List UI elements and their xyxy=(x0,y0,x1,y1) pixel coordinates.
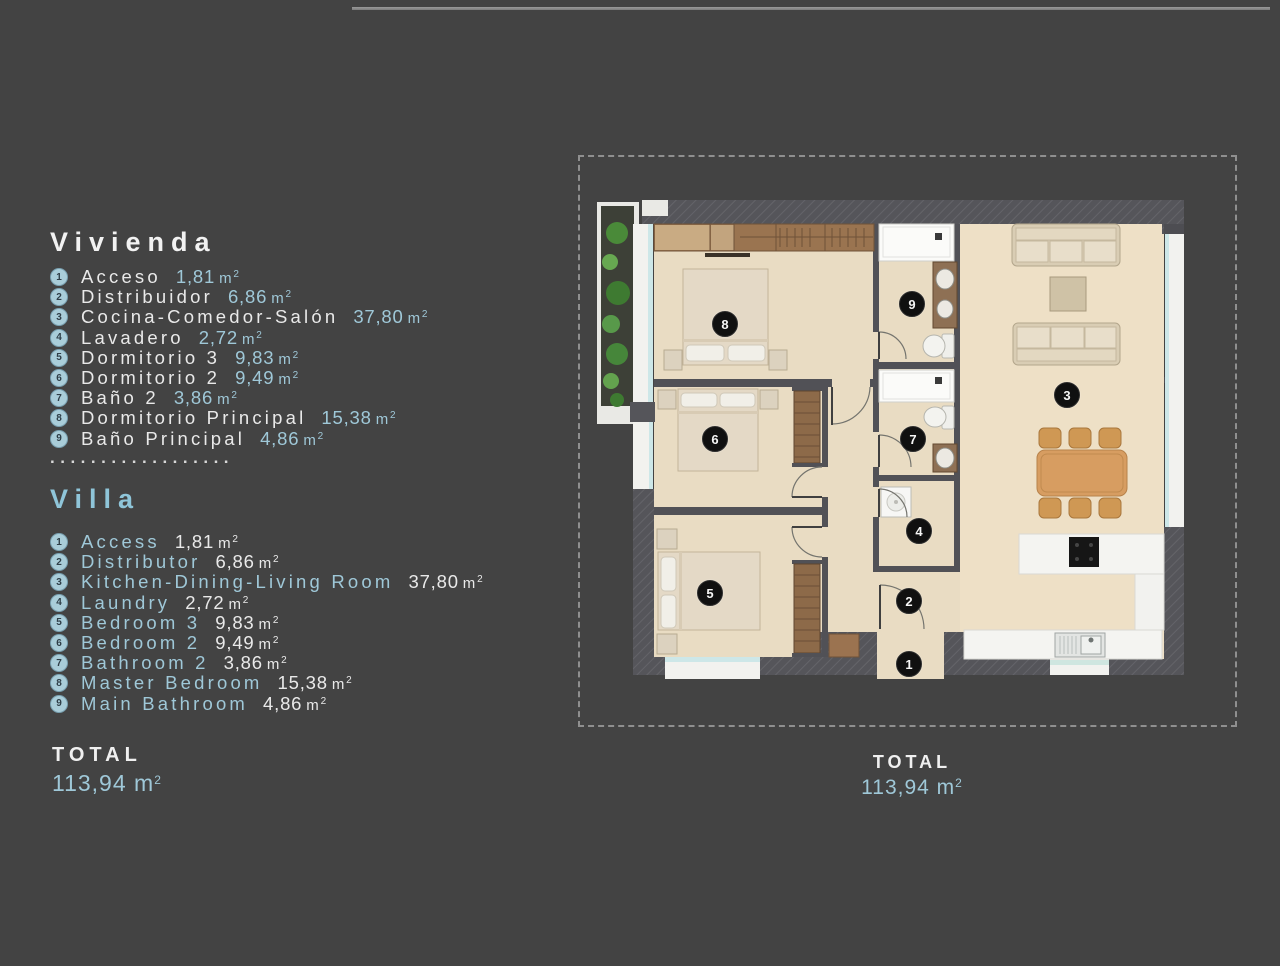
plan-marker-6: 6 xyxy=(702,426,728,452)
room-number-badge: 2 xyxy=(50,553,68,571)
room-number-badge: 2 xyxy=(50,288,68,306)
plan-marker-9: 9 xyxy=(899,291,925,317)
room-number-badge: 7 xyxy=(50,654,68,672)
list-item: 8Master Bedroom15,38m2 xyxy=(50,673,570,693)
room-area: 1,81m2 xyxy=(175,531,239,553)
room-number-badge: 5 xyxy=(50,614,68,632)
total-label: TOTAL xyxy=(826,752,998,773)
list-item: 3Cocina-Comedor-Salón37,80m2 xyxy=(50,307,570,327)
room-label: Kitchen-Dining-Living Room xyxy=(81,571,394,593)
glass-wall-right xyxy=(1165,234,1184,527)
room-label: Dormitorio Principal xyxy=(81,407,306,429)
room-label: Master Bedroom xyxy=(81,672,263,694)
room-number-badge: 4 xyxy=(50,329,68,347)
list-item: 9Main Bathroom4,86m2 xyxy=(50,694,570,714)
total-label: TOTAL xyxy=(52,744,162,767)
section-title-villa: Villa xyxy=(50,484,140,515)
room-number-badge: 8 xyxy=(50,409,68,427)
room-area: 9,49m2 xyxy=(215,632,279,654)
list-item: 7Baño 23,86m2 xyxy=(50,388,570,408)
plan-marker-4: 4 xyxy=(906,518,932,544)
total-value: 113,94 m2 xyxy=(826,776,998,800)
room-area: 9,83m2 xyxy=(215,612,279,634)
total-value: 113,94 m2 xyxy=(52,770,162,797)
list-item: 7Bathroom 23,86m2 xyxy=(50,653,570,673)
plan-marker-7: 7 xyxy=(900,426,926,452)
room-area: 9,83m2 xyxy=(235,347,299,369)
room-area: 6,86m2 xyxy=(228,286,292,308)
garden-planter xyxy=(597,202,639,424)
room-area: 15,38m2 xyxy=(278,672,353,694)
floorplan-brochure-page: { "units": { "m": "m", "sup": "2" }, "le… xyxy=(0,0,1280,966)
list-item: 8Dormitorio Principal15,38m2 xyxy=(50,408,570,428)
room-number-badge: 1 xyxy=(50,533,68,551)
plan-marker-5: 5 xyxy=(697,580,723,606)
room-label: Acceso xyxy=(81,266,161,288)
room-area: 2,72m2 xyxy=(199,327,263,349)
floor-plan: 1 2 3 4 5 6 7 8 9 xyxy=(578,155,1237,727)
room-number-badge: 5 xyxy=(50,349,68,367)
room-area: 37,80m2 xyxy=(409,571,484,593)
list-item: 3Kitchen-Dining-Living Room37,80m2 xyxy=(50,572,570,592)
plan-marker-1: 1 xyxy=(896,651,922,677)
room-area: 4,86m2 xyxy=(263,693,327,715)
total-plan: TOTAL 113,94 m2 xyxy=(826,752,998,800)
room-label: Dormitorio 3 xyxy=(81,347,220,369)
list-item: 9Baño Principal4,86m2 xyxy=(50,429,570,449)
room-label: Access xyxy=(81,531,160,553)
room-number-badge: 6 xyxy=(50,634,68,652)
room-area: 37,80m2 xyxy=(353,306,428,328)
room-area: 1,81m2 xyxy=(176,266,240,288)
room-label: Lavadero xyxy=(81,327,184,349)
room-label: Main Bathroom xyxy=(81,693,248,715)
plan-marker-2: 2 xyxy=(896,588,922,614)
room-label: Laundry xyxy=(81,592,170,614)
section-separator-dots: .................. xyxy=(50,448,234,468)
list-item: 6Bedroom 29,49m2 xyxy=(50,633,570,653)
room-number-badge: 9 xyxy=(50,430,68,448)
room-area: 2,72m2 xyxy=(185,592,249,614)
room-label: Distribuidor xyxy=(81,286,213,308)
list-item: 2Distributor6,86m2 xyxy=(50,552,570,572)
list-item: 2Distribuidor6,86m2 xyxy=(50,287,570,307)
list-item: 5Dormitorio 39,83m2 xyxy=(50,348,570,368)
room-number-badge: 3 xyxy=(50,573,68,591)
room-number-badge: 8 xyxy=(50,674,68,692)
total-left: TOTAL 113,94 m2 xyxy=(52,744,162,797)
room-number-badge: 4 xyxy=(50,594,68,612)
room-area: 4,86m2 xyxy=(260,428,324,450)
room-label: Baño 2 xyxy=(81,387,159,409)
room-label: Bedroom 2 xyxy=(81,632,200,654)
room-number-badge: 1 xyxy=(50,268,68,286)
room-area: 15,38m2 xyxy=(321,407,396,429)
list-item: 4Lavadero2,72m2 xyxy=(50,328,570,348)
section-title-vivienda: Vivienda xyxy=(50,227,217,258)
plan-marker-3: 3 xyxy=(1054,382,1080,408)
room-number-badge: 3 xyxy=(50,308,68,326)
room-label: Cocina-Comedor-Salón xyxy=(81,306,338,328)
room-number-badge: 9 xyxy=(50,695,68,713)
room-area: 3,86m2 xyxy=(174,387,238,409)
room-number-badge: 7 xyxy=(50,389,68,407)
room-label: Baño Principal xyxy=(81,428,245,450)
villa-room-list: 1Access1,81m2 2Distributor6,86m2 3Kitche… xyxy=(50,532,570,714)
list-item: 6Dormitorio 29,49m2 xyxy=(50,368,570,388)
dining-set xyxy=(1037,428,1127,518)
room-label: Dormitorio 2 xyxy=(81,367,220,389)
page-top-divider xyxy=(352,7,1270,10)
room-area: 9,49m2 xyxy=(235,367,299,389)
list-item: 1Acceso1,81m2 xyxy=(50,267,570,287)
vivienda-room-list: 1Acceso1,81m2 2Distribuidor6,86m2 3Cocin… xyxy=(50,267,570,449)
room-label: Distributor xyxy=(81,551,201,573)
room-area: 3,86m2 xyxy=(224,652,288,674)
room-label: Bedroom 3 xyxy=(81,612,200,634)
list-item: 4Laundry2,72m2 xyxy=(50,593,570,613)
list-item: 5Bedroom 39,83m2 xyxy=(50,613,570,633)
room-area: 6,86m2 xyxy=(216,551,280,573)
bedroom2-furniture xyxy=(658,387,822,471)
room-number-badge: 6 xyxy=(50,369,68,387)
plan-marker-8: 8 xyxy=(712,311,738,337)
room-label: Bathroom 2 xyxy=(81,652,209,674)
list-item: 1Access1,81m2 xyxy=(50,532,570,552)
